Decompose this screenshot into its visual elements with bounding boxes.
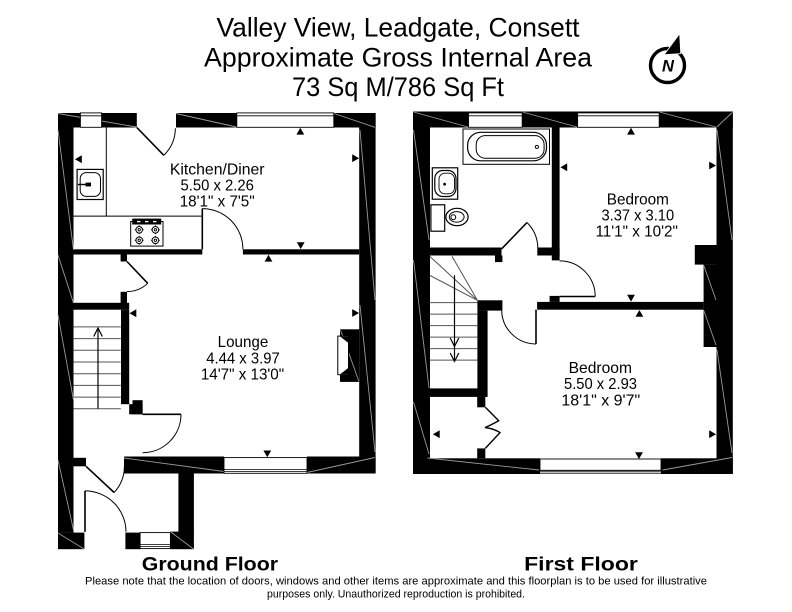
svg-text:Ground Floor: Ground Floor xyxy=(142,555,279,576)
svg-text:11'1" x 10'2": 11'1" x 10'2" xyxy=(595,224,678,241)
svg-text:5.50 x 2.93: 5.50 x 2.93 xyxy=(564,376,637,393)
svg-text:4.44 x 3.97: 4.44 x 3.97 xyxy=(206,351,280,368)
svg-text:Valley View, Leadgate, Consett: Valley View, Leadgate, Consett xyxy=(217,13,581,43)
svg-text:73 Sq M/786 Sq Ft: 73 Sq M/786 Sq Ft xyxy=(292,72,505,102)
svg-text:3.37 x 3.10: 3.37 x 3.10 xyxy=(601,208,674,225)
svg-text:Bedroom: Bedroom xyxy=(607,192,669,209)
svg-text:18'1" x 9'7": 18'1" x 9'7" xyxy=(561,392,640,409)
svg-text:N: N xyxy=(662,57,675,75)
svg-text:5.50 x 2.26: 5.50 x 2.26 xyxy=(181,178,255,195)
svg-text:Please note that the location: Please note that the location of doors, … xyxy=(85,575,707,587)
svg-text:Lounge: Lounge xyxy=(218,334,269,351)
svg-text:Bedroom: Bedroom xyxy=(569,360,632,377)
svg-text:First Floor: First Floor xyxy=(524,555,638,576)
svg-text:18'1" x 7'5": 18'1" x 7'5" xyxy=(180,194,255,211)
svg-text:purposes only. Unauthorized re: purposes only. Unauthorized reproduction… xyxy=(267,588,525,600)
svg-text:Approximate Gross Internal Are: Approximate Gross Internal Area xyxy=(204,42,592,72)
svg-text:Kitchen/Diner: Kitchen/Diner xyxy=(170,162,265,179)
svg-text:14'7" x 13'0": 14'7" x 13'0" xyxy=(201,367,284,384)
